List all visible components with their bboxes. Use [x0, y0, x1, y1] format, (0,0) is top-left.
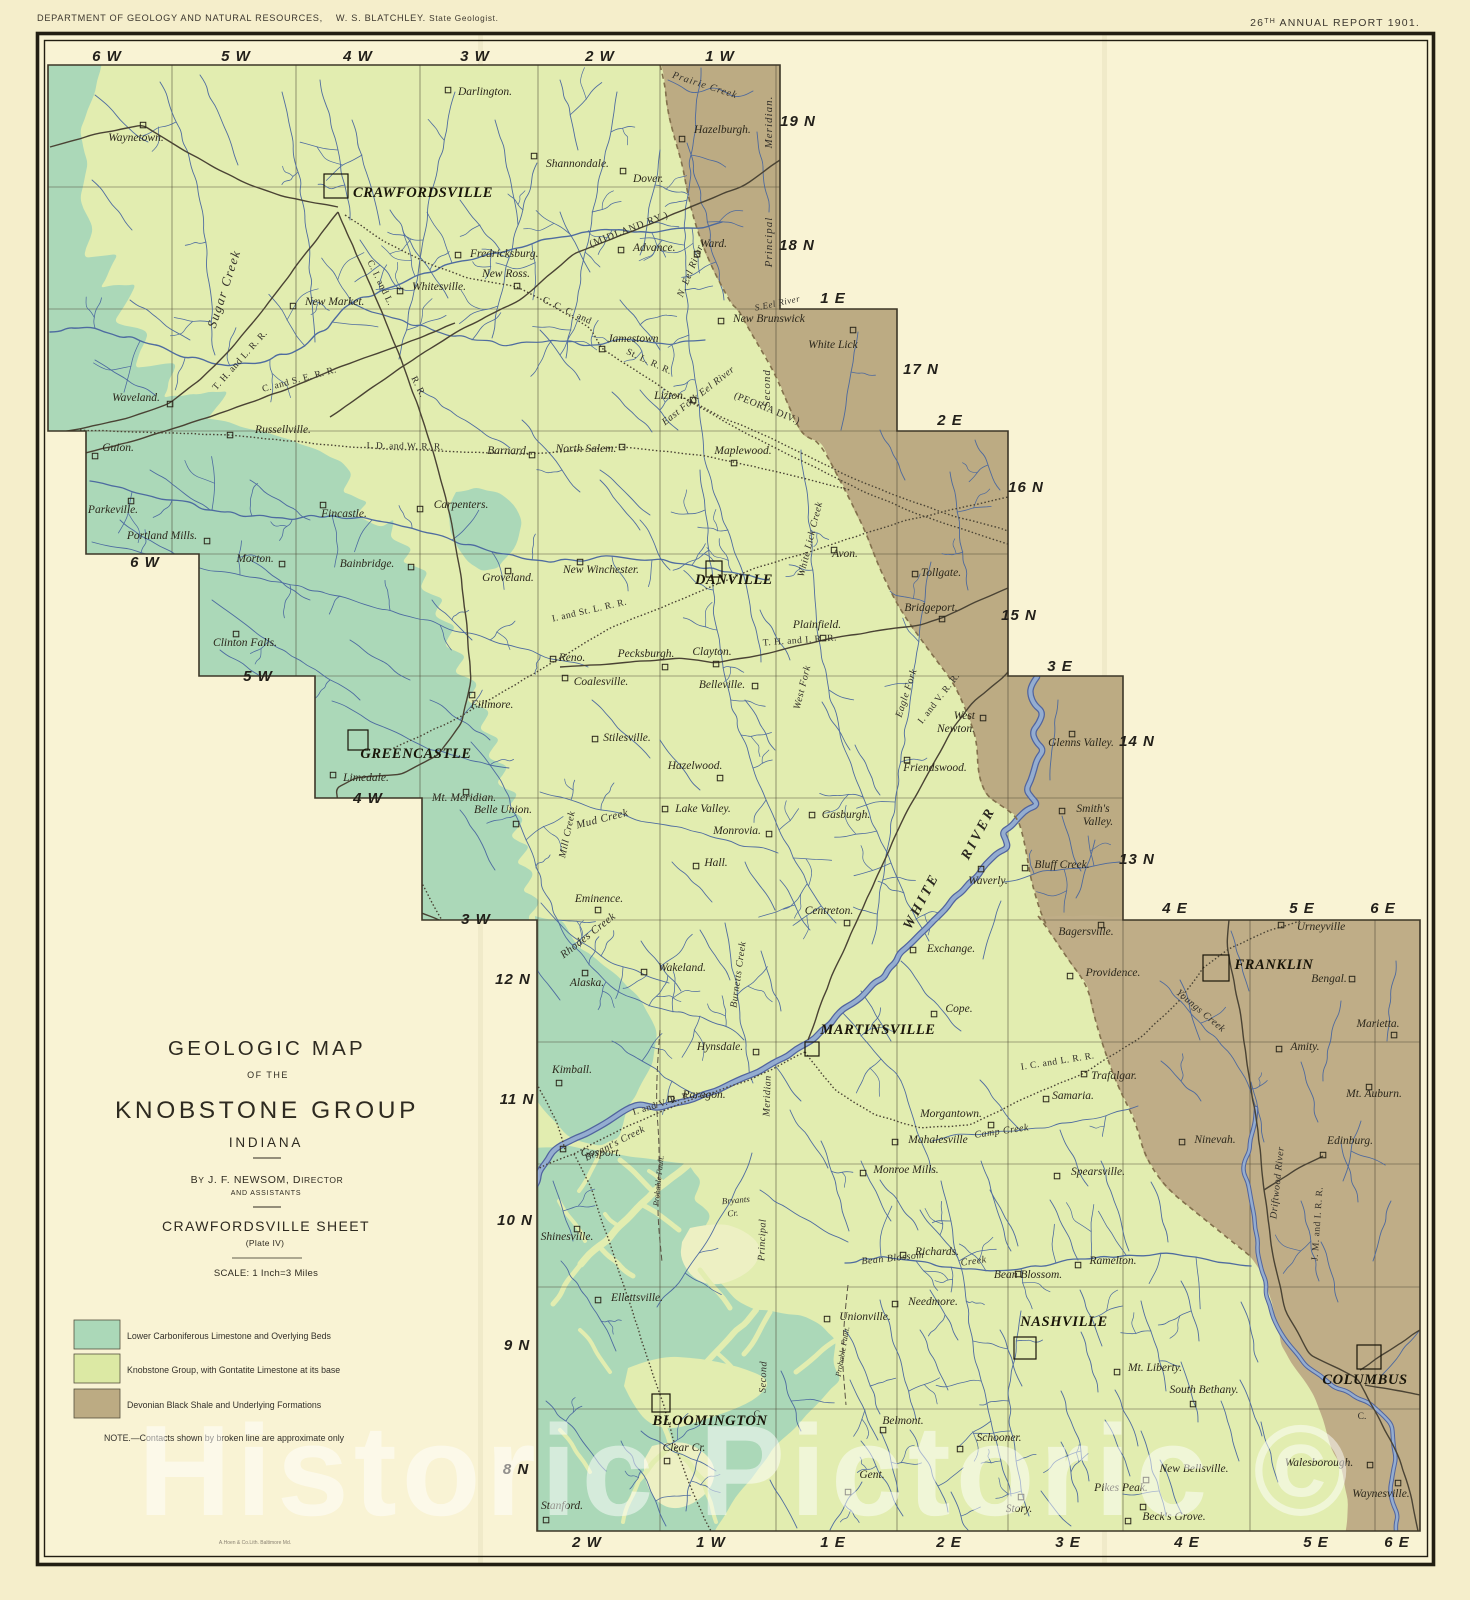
- svg-text:Russellville.: Russellville.: [254, 424, 311, 436]
- svg-text:NASHVILLE: NASHVILLE: [1019, 1314, 1108, 1330]
- svg-text:COLUMBUS: COLUMBUS: [1322, 1372, 1407, 1388]
- svg-text:GREENCASTLE: GREENCASTLE: [360, 746, 471, 762]
- svg-text:13 N: 13 N: [1119, 851, 1155, 868]
- svg-text:Providence.: Providence.: [1085, 967, 1141, 979]
- svg-text:Hall.: Hall.: [703, 857, 727, 869]
- svg-text:Clayton.: Clayton.: [692, 646, 731, 658]
- svg-text:6 E: 6 E: [1384, 1534, 1410, 1551]
- svg-text:Exchange.: Exchange.: [926, 943, 975, 955]
- svg-text:Fredricksburg.: Fredricksburg.: [469, 248, 538, 260]
- svg-text:Avon.: Avon.: [831, 548, 858, 560]
- svg-text:AND ASSISTANTS: AND ASSISTANTS: [231, 1190, 302, 1197]
- svg-text:SCALE: 1 Inch=3 Miles: SCALE: 1 Inch=3 Miles: [214, 1268, 318, 1279]
- svg-text:Friendswood.: Friendswood.: [902, 762, 967, 774]
- svg-text:Stilesville.: Stilesville.: [603, 732, 651, 744]
- svg-text:Bridgeport.: Bridgeport.: [904, 602, 957, 614]
- svg-text:3 W: 3 W: [461, 911, 492, 928]
- svg-text:Cr.: Cr.: [727, 1208, 739, 1219]
- svg-text:3 W: 3 W: [460, 48, 491, 65]
- svg-text:Gasburgh.: Gasburgh.: [822, 809, 870, 821]
- svg-text:2 W: 2 W: [584, 48, 616, 65]
- svg-text:Bainbridge.: Bainbridge.: [340, 558, 395, 570]
- svg-text:10 N: 10 N: [497, 1212, 533, 1229]
- svg-text:17 N: 17 N: [903, 361, 939, 378]
- svg-text:Alaska.: Alaska.: [569, 977, 604, 989]
- svg-text:Whitesville.: Whitesville.: [412, 281, 466, 293]
- svg-text:Second: Second: [757, 1360, 769, 1393]
- svg-text:Hynsdale.: Hynsdale.: [696, 1041, 743, 1053]
- svg-text:Ramelton.: Ramelton.: [1089, 1255, 1137, 1267]
- svg-text:5 E: 5 E: [1289, 900, 1315, 917]
- svg-text:Amity.: Amity.: [1289, 1041, 1319, 1053]
- svg-text:Hazelburgh.: Hazelburgh.: [693, 124, 751, 136]
- svg-text:5 W: 5 W: [243, 668, 274, 685]
- svg-text:Waveland.: Waveland.: [112, 392, 160, 404]
- svg-text:Limedale.: Limedale.: [342, 772, 389, 784]
- svg-text:Cope.: Cope.: [945, 1003, 972, 1015]
- svg-text:I. D. and W. R. R.: I. D. and W. R. R.: [366, 441, 443, 452]
- svg-text:Lake Valley.: Lake Valley.: [674, 803, 731, 815]
- svg-text:Glenns Valley.: Glenns Valley.: [1048, 737, 1114, 749]
- svg-text:Mt. Meridian.: Mt. Meridian.: [431, 792, 496, 804]
- svg-text:Shinesville.: Shinesville.: [541, 1231, 594, 1243]
- svg-text:Tollgate.: Tollgate.: [921, 567, 961, 579]
- svg-text:Mahalesville: Mahalesville: [907, 1134, 967, 1146]
- svg-text:Needmore.: Needmore.: [907, 1296, 958, 1308]
- svg-text:GEOLOGIC MAP: GEOLOGIC MAP: [168, 1037, 366, 1060]
- svg-text:Pecksburgh.: Pecksburgh.: [617, 648, 675, 660]
- svg-text:South Bethany.: South Bethany.: [1170, 1384, 1239, 1396]
- svg-text:Portland Mills.: Portland Mills.: [126, 530, 197, 542]
- svg-text:Meridian.: Meridian.: [763, 96, 775, 150]
- svg-text:Lower Carboniferous Limestone: Lower Carboniferous Limestone and Overly…: [127, 1331, 332, 1341]
- svg-text:Dover.: Dover.: [632, 173, 663, 185]
- svg-text:Hazelwood.: Hazelwood.: [667, 760, 723, 772]
- svg-text:Marietta.: Marietta.: [1355, 1018, 1399, 1030]
- svg-text:4 W: 4 W: [352, 790, 384, 807]
- svg-text:2 E: 2 E: [936, 412, 963, 429]
- svg-text:9 N: 9 N: [504, 1337, 531, 1354]
- svg-text:Valley.: Valley.: [1083, 816, 1113, 828]
- svg-text:1 W: 1 W: [705, 48, 736, 65]
- svg-text:New Brunswick: New Brunswick: [732, 313, 806, 325]
- svg-text:Ellettsville.: Ellettsville.: [610, 1292, 663, 1304]
- svg-text:Smith's: Smith's: [1076, 803, 1110, 815]
- svg-text:14 N: 14 N: [1119, 733, 1155, 750]
- svg-text:Bengal.: Bengal.: [1311, 973, 1346, 985]
- svg-text:Principal: Principal: [763, 217, 775, 269]
- svg-text:Groveland.: Groveland.: [482, 572, 534, 584]
- svg-text:Clinton Falls.: Clinton Falls.: [213, 637, 277, 649]
- svg-text:Waynetown.: Waynetown.: [108, 132, 163, 144]
- svg-text:Meridian: Meridian: [761, 1075, 773, 1118]
- svg-text:CRAWFORDSVILLE: CRAWFORDSVILLE: [353, 185, 493, 201]
- svg-text:Eminence.: Eminence.: [574, 893, 623, 905]
- svg-text:Bean Blossom.: Bean Blossom.: [994, 1269, 1062, 1281]
- svg-text:BY J. F. NEWSOM, DIRECTOR: BY J. F. NEWSOM, DIRECTOR: [191, 1174, 344, 1186]
- svg-text:Bluff Creek.: Bluff Creek.: [1034, 859, 1089, 871]
- svg-text:12 N: 12 N: [495, 971, 531, 988]
- svg-text:Edinburg.: Edinburg.: [1326, 1135, 1373, 1147]
- svg-text:Kimball.: Kimball.: [551, 1064, 592, 1076]
- svg-text:West: West: [954, 710, 976, 722]
- svg-text:Wakeland.: Wakeland.: [658, 962, 706, 974]
- svg-text:KNOBSTONE GROUP: KNOBSTONE GROUP: [115, 1097, 419, 1124]
- svg-text:CRAWFORDSVILLE SHEET: CRAWFORDSVILLE SHEET: [162, 1218, 370, 1234]
- svg-text:MARTINSVILLE: MARTINSVILLE: [819, 1022, 935, 1038]
- svg-text:Waynesville.: Waynesville.: [1352, 1488, 1409, 1500]
- svg-text:Spearsville.: Spearsville.: [1071, 1166, 1125, 1178]
- svg-text:North Salem.: North Salem.: [555, 443, 617, 455]
- svg-text:Urneyville: Urneyville: [1297, 921, 1346, 933]
- svg-text:Parkeville.: Parkeville.: [87, 504, 138, 516]
- svg-text:6 E: 6 E: [1370, 900, 1396, 917]
- svg-text:Waverly.: Waverly.: [968, 875, 1008, 887]
- svg-text:Unionville.: Unionville.: [839, 1311, 890, 1323]
- svg-text:15 N: 15 N: [1001, 607, 1037, 624]
- svg-text:Trafalgar.: Trafalgar.: [1091, 1070, 1137, 1082]
- svg-text:Advance.: Advance.: [632, 242, 675, 254]
- svg-text:6 W: 6 W: [130, 554, 161, 571]
- svg-text:3 E: 3 E: [1047, 658, 1073, 675]
- svg-text:Mt. Auburn.: Mt. Auburn.: [1345, 1088, 1402, 1100]
- svg-text:Fillmore.: Fillmore.: [470, 699, 514, 711]
- svg-text:Bagersville.: Bagersville.: [1058, 926, 1113, 938]
- svg-text:New Market.: New Market.: [304, 296, 364, 308]
- svg-text:Morton.: Morton.: [235, 553, 273, 565]
- svg-text:Plainfield.: Plainfield.: [792, 619, 841, 631]
- svg-text:Guion.: Guion.: [102, 442, 134, 454]
- svg-text:(Plate IV): (Plate IV): [246, 1238, 284, 1248]
- svg-text:Lizton.: Lizton.: [653, 390, 686, 402]
- svg-text:16 N: 16 N: [1008, 479, 1044, 496]
- svg-text:Monrovia.: Monrovia.: [712, 825, 761, 837]
- svg-text:4 W: 4 W: [342, 48, 374, 65]
- svg-text:FRANKLIN: FRANKLIN: [1234, 957, 1314, 973]
- svg-text:Maplewood.: Maplewood.: [713, 445, 771, 457]
- svg-text:Ninevah.: Ninevah.: [1193, 1134, 1235, 1146]
- svg-text:DANVILLE: DANVILLE: [694, 572, 773, 588]
- svg-text:26TH ANNUAL REPORT 1901.: 26TH ANNUAL REPORT 1901.: [1250, 17, 1420, 29]
- svg-text:INDIANA: INDIANA: [229, 1135, 303, 1150]
- svg-text:White Lick: White Lick: [808, 339, 858, 351]
- svg-text:Shannondale.: Shannondale.: [546, 158, 609, 170]
- svg-text:New Winchester.: New Winchester.: [562, 564, 639, 576]
- svg-text:Reno.: Reno.: [558, 652, 586, 664]
- svg-text:Barnard.: Barnard.: [487, 445, 528, 457]
- svg-text:5 W: 5 W: [221, 48, 252, 65]
- svg-text:C.: C.: [1358, 1412, 1367, 1422]
- svg-text:Belleville.: Belleville.: [699, 679, 745, 691]
- svg-text:Samaria.: Samaria.: [1052, 1090, 1094, 1102]
- svg-text:Centreton.: Centreton.: [805, 905, 853, 917]
- svg-text:Historic Pictoric ©: Historic Pictoric ©: [138, 1399, 1353, 1543]
- svg-text:11 N: 11 N: [500, 1091, 535, 1108]
- svg-text:4 E: 4 E: [1161, 900, 1188, 917]
- svg-text:DEPARTMENT OF GEOLOGY AND NATU: DEPARTMENT OF GEOLOGY AND NATURAL RESOUR…: [37, 13, 499, 23]
- svg-text:19 N: 19 N: [780, 113, 816, 130]
- svg-text:Carpenters.: Carpenters.: [434, 499, 489, 511]
- svg-text:6 W: 6 W: [92, 48, 123, 65]
- svg-text:18 N: 18 N: [779, 237, 815, 254]
- svg-text:Morgantown.: Morgantown.: [919, 1108, 982, 1120]
- svg-text:Mt. Liberty.: Mt. Liberty.: [1127, 1362, 1182, 1374]
- svg-text:Darlington.: Darlington.: [457, 86, 512, 98]
- svg-text:Fincastle.: Fincastle.: [320, 508, 367, 520]
- svg-text:1 E: 1 E: [820, 290, 846, 307]
- svg-text:Jamestown: Jamestown: [607, 333, 658, 345]
- svg-text:Belle Union.: Belle Union.: [474, 804, 532, 816]
- svg-text:Newton.: Newton.: [936, 723, 975, 735]
- svg-text:OF THE: OF THE: [247, 1070, 289, 1080]
- svg-text:New Ross.: New Ross.: [481, 268, 530, 280]
- svg-text:Coalesville.: Coalesville.: [574, 676, 629, 688]
- svg-text:Principal: Principal: [756, 1219, 769, 1263]
- svg-text:Knobstone Group, with Gontatit: Knobstone Group, with Gontatite Limeston…: [127, 1365, 340, 1375]
- svg-text:Monroe Mills.: Monroe Mills.: [872, 1164, 938, 1176]
